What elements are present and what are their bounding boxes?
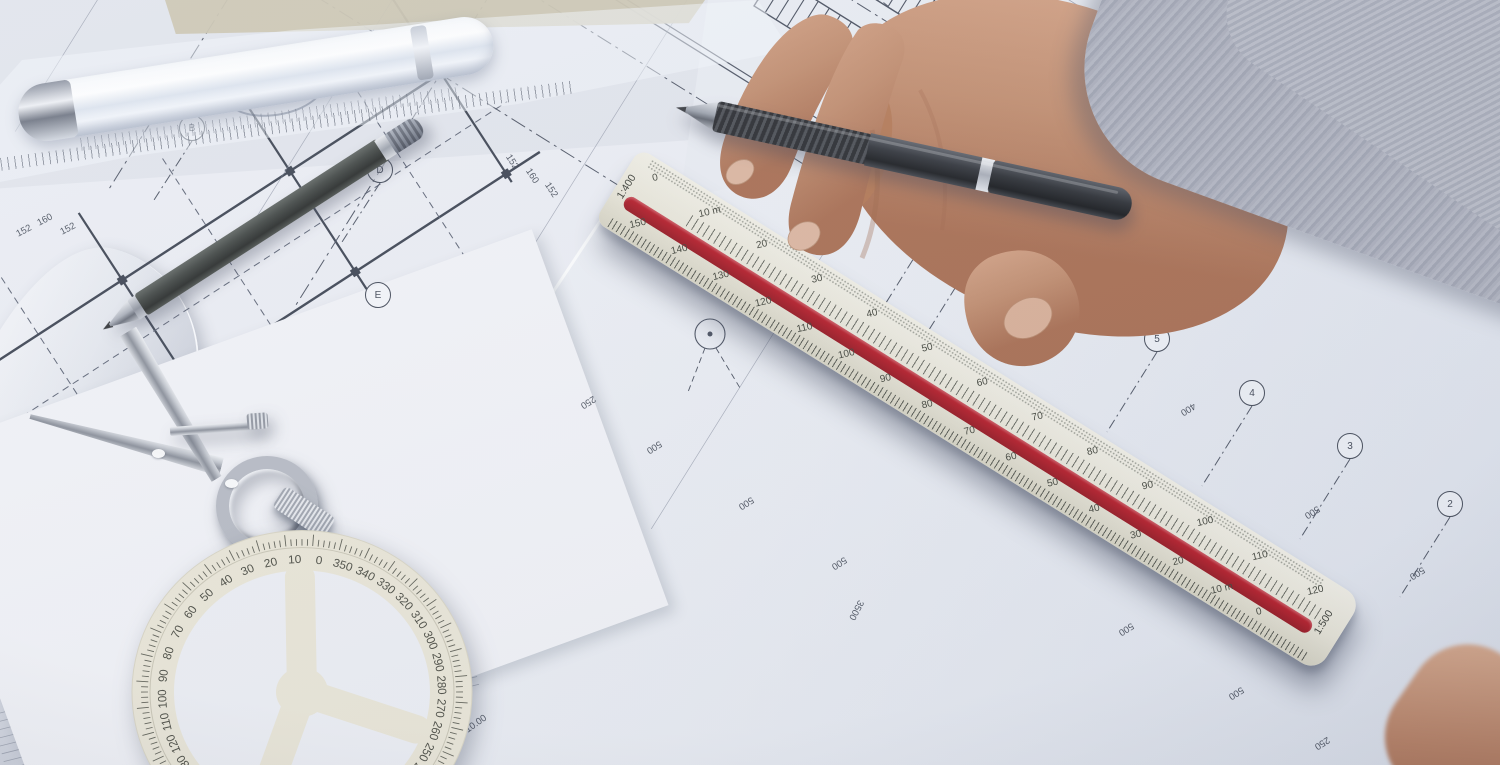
ruler-number: 0: [1255, 606, 1263, 618]
ruler-number: 60: [1004, 450, 1017, 463]
dimension-label: 3500: [846, 598, 866, 622]
ruler-number: 40: [1088, 503, 1101, 516]
dimension-label: 250: [1312, 734, 1331, 752]
compass-screw-hole: [225, 479, 238, 488]
dimension-label: 152: [58, 220, 77, 237]
dimension-label: 500: [829, 554, 848, 572]
dimension-label: 152: [14, 222, 33, 239]
grid-reference-bubble: 2: [1437, 491, 1463, 517]
protractor-degree-label: 280: [434, 675, 448, 695]
dimension-label: 250: [578, 393, 597, 411]
grid-bubble-label: E: [375, 290, 382, 301]
dimension-label: 500: [1302, 503, 1321, 521]
grid-bubble-label: 2: [1447, 499, 1453, 510]
dimension-label: 160: [35, 211, 54, 228]
dimension-label: 152: [542, 180, 560, 199]
dimension-label: 500: [1226, 684, 1245, 702]
ruler-number: 30: [1129, 529, 1142, 542]
dimension-label: 500: [1407, 564, 1426, 582]
protractor-degree-label: 100: [156, 689, 170, 709]
circular-protractor: 0102030405060708090100110120130140150160…: [116, 506, 488, 765]
compass-screw-hole: [152, 449, 165, 458]
ruler-number: 50: [1046, 477, 1059, 490]
rolling-ruler-ring: [410, 25, 434, 81]
architect-desk-scene: 1521601521521601522505005005003500400500…: [0, 0, 1500, 765]
grid-bubble-label: 3: [1347, 441, 1353, 452]
dimension-label: 160: [523, 166, 541, 185]
compass-adjust-nut: [246, 412, 268, 429]
ruler-number: 120: [1306, 583, 1325, 597]
grid-reference-bubble: E: [365, 282, 391, 308]
ruler-number: 100: [1196, 515, 1215, 529]
ruler-number: 80: [1086, 445, 1099, 458]
dimension-label: 500: [644, 438, 663, 456]
protractor-degree-label: 270: [432, 698, 448, 719]
protractor-degree-label: 10: [288, 553, 303, 566]
ruler-unit-label: 10 m: [1210, 581, 1234, 597]
protractor-degree-label: 90: [156, 668, 171, 683]
dimension-label: 152: [503, 152, 521, 171]
dimension-label: 500: [1116, 620, 1135, 638]
ruler-number: 90: [1141, 479, 1154, 492]
ruler-number: 20: [1171, 555, 1184, 568]
dimension-label: 500: [736, 494, 755, 512]
ruler-number: 110: [1251, 549, 1269, 563]
grid-reference-bubble: 3: [1337, 433, 1363, 459]
